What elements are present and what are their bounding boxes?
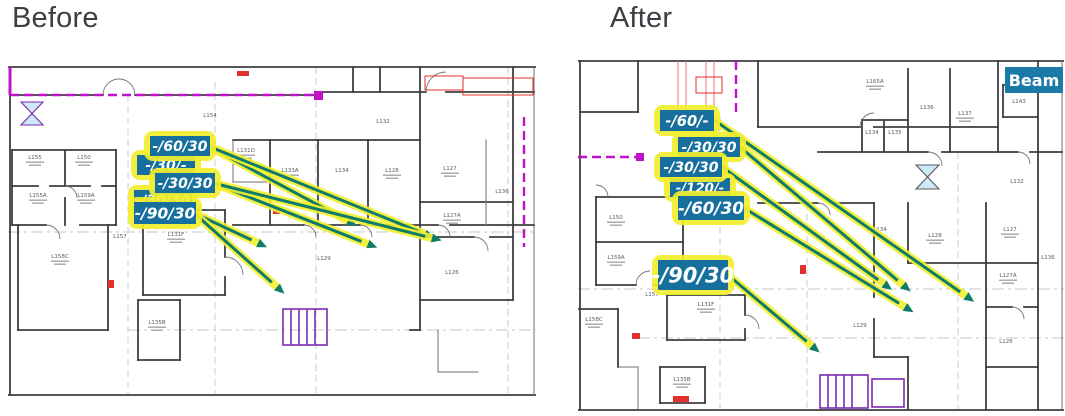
- callout-text: -/60/30: [678, 198, 744, 218]
- room-sublabel: [607, 262, 625, 263]
- room-sublabel: [869, 89, 881, 90]
- room-label: L143: [1012, 99, 1026, 105]
- room-sublabel: [26, 162, 44, 163]
- before-title: Before: [12, 2, 99, 35]
- room-sublabel: [444, 176, 456, 177]
- room-label: L126: [445, 270, 459, 276]
- callout-text: -/30/30: [157, 176, 212, 192]
- callout-text: -/60/-: [665, 113, 708, 130]
- before-panel: L154L132L155L150L155AL159AL131DL133AL134…: [8, 62, 536, 400]
- room-label: L137: [958, 111, 972, 117]
- room-sublabel: [167, 239, 185, 240]
- room-sublabel: [700, 312, 712, 313]
- room-label: L128: [385, 168, 399, 174]
- room-sublabel: [926, 240, 944, 241]
- room-label: L131F: [698, 302, 715, 308]
- room-sublabel: [866, 86, 884, 87]
- room-label: L131D: [237, 148, 255, 154]
- room-sublabel: [585, 324, 603, 325]
- room-sublabel: [929, 243, 941, 244]
- room-label: L134: [865, 130, 879, 136]
- room-sublabel: [959, 121, 971, 122]
- callout-text: -/90/30: [135, 205, 196, 223]
- room-sublabel: [80, 203, 92, 204]
- before-plan-svg: L154L132L155L150L155AL159AL131DL133AL134…: [8, 62, 536, 400]
- room-sublabel: [1001, 234, 1019, 235]
- room-label: L154: [203, 113, 217, 119]
- callout-text: -/30/30: [663, 160, 718, 176]
- room-sublabel: [956, 118, 974, 119]
- callout-text: -/60/30: [152, 139, 207, 155]
- room-label: L135B: [148, 320, 166, 326]
- room-sublabel: [697, 309, 715, 310]
- room-label: L135B: [673, 377, 691, 383]
- room-sublabel: [446, 223, 458, 224]
- room-sublabel: [78, 165, 90, 166]
- room-sublabel: [607, 222, 625, 223]
- room-label: L132: [1010, 179, 1024, 185]
- room-label: L129: [317, 256, 331, 262]
- room-label: L150: [609, 215, 623, 221]
- room-label: L127A: [443, 213, 461, 219]
- room-sublabel: [676, 387, 688, 388]
- after-title: After: [610, 2, 672, 35]
- room-sublabel: [443, 220, 461, 221]
- room-sublabel: [610, 225, 622, 226]
- room-sublabel: [383, 175, 401, 176]
- room-label: L128: [928, 233, 942, 239]
- room-sublabel: [51, 261, 69, 262]
- room-label: L136: [495, 189, 509, 195]
- room-label: L131F: [168, 232, 185, 238]
- room-label: L127: [443, 166, 457, 172]
- leader-line: [194, 213, 272, 282]
- stairs: [820, 375, 904, 408]
- room-label: L159A: [607, 255, 625, 261]
- room-label: L127: [1003, 227, 1017, 233]
- room-label: L157: [113, 234, 127, 240]
- room-label: L159A: [77, 193, 95, 199]
- room-sublabel: [77, 200, 95, 201]
- room-label: L136: [920, 105, 934, 111]
- after-panel: L165AL136L137L134L135L143L132L150L159AL1…: [578, 57, 1064, 413]
- room-sublabel: [151, 330, 163, 331]
- room-sublabel: [148, 327, 166, 328]
- room-sublabel: [441, 173, 459, 174]
- room-sublabel: [29, 165, 41, 166]
- room-sublabel: [588, 327, 600, 328]
- room-label: L126: [999, 339, 1013, 345]
- room-label: L165A: [866, 79, 884, 85]
- room-sublabel: [673, 384, 691, 385]
- room-sublabel: [54, 264, 66, 265]
- leader-arrowhead: [431, 234, 443, 245]
- room-label: L158C: [585, 317, 603, 323]
- leader-line: [728, 275, 807, 341]
- room-label: L158C: [51, 254, 69, 260]
- before-floor-plan: [8, 67, 536, 395]
- room-sublabel: [1004, 237, 1016, 238]
- room-label: L155A: [29, 193, 47, 199]
- stairs: [283, 309, 327, 345]
- room-sublabel: [999, 280, 1017, 281]
- room-label: L127A: [999, 273, 1017, 279]
- room-sublabel: [1002, 283, 1014, 284]
- room-label: L150: [77, 155, 91, 161]
- room-label: L135: [888, 130, 902, 136]
- callout-text: -/90/30: [652, 264, 735, 288]
- room-sublabel: [32, 203, 44, 204]
- room-sublabel: [610, 265, 622, 266]
- room-sublabel: [170, 242, 182, 243]
- room-sublabel: [29, 200, 47, 201]
- room-label: L129: [853, 323, 867, 329]
- room-label: L132: [376, 119, 390, 125]
- after-plan-svg: L165AL136L137L134L135L143L132L150L159AL1…: [578, 57, 1064, 413]
- room-label: L134: [335, 168, 349, 174]
- room-label: L155: [28, 155, 42, 161]
- room-sublabel: [75, 162, 93, 163]
- beam-tag-text: Beam: [1009, 71, 1060, 90]
- room-sublabel: [386, 178, 398, 179]
- room-label: L136: [1041, 255, 1055, 261]
